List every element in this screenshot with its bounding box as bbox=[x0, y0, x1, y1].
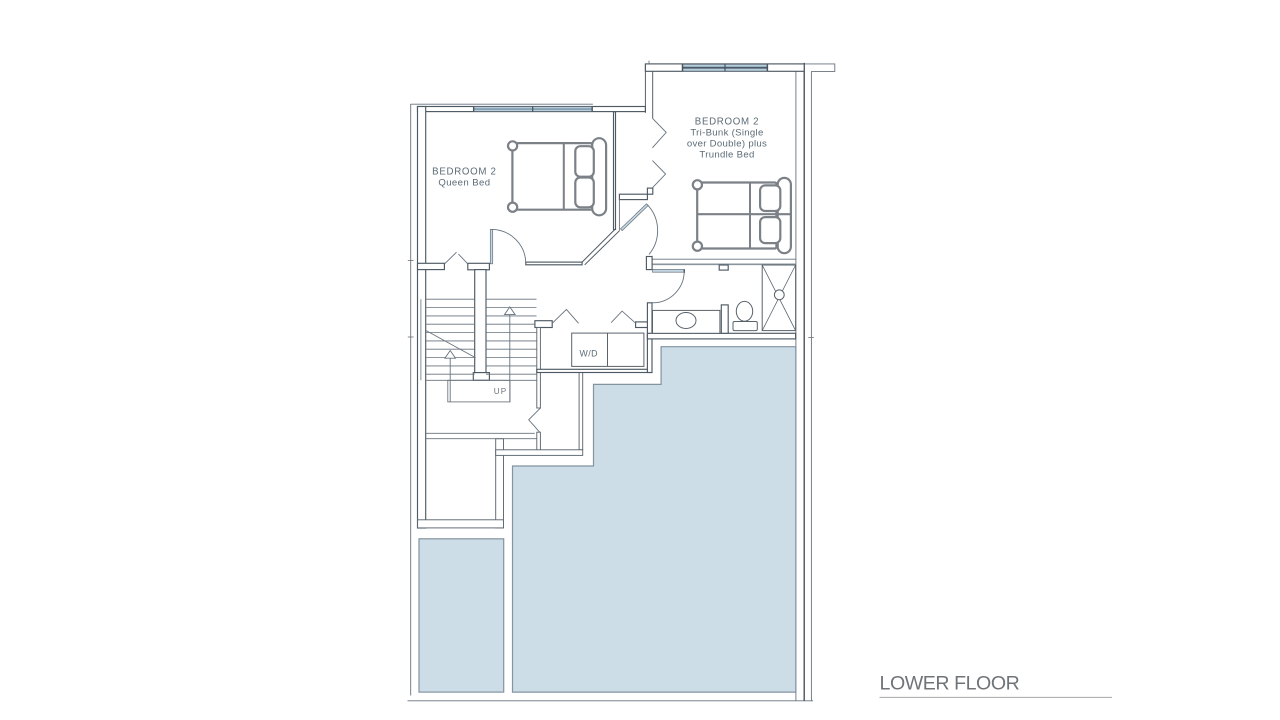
svg-text:LOWER FLOOR: LOWER FLOOR bbox=[880, 672, 1020, 694]
svg-text:Tri-Bunk (Single: Tri-Bunk (Single bbox=[690, 128, 763, 139]
svg-text:BEDROOM 2: BEDROOM 2 bbox=[695, 117, 759, 128]
svg-text:Trundle Bed: Trundle Bed bbox=[699, 150, 754, 161]
svg-text:W/D: W/D bbox=[580, 349, 598, 359]
svg-text:Queen Bed: Queen Bed bbox=[438, 178, 490, 189]
svg-text:BEDROOM 2: BEDROOM 2 bbox=[432, 167, 496, 178]
svg-text:over Double) plus: over Double) plus bbox=[687, 139, 767, 150]
svg-text:UP: UP bbox=[494, 387, 508, 396]
